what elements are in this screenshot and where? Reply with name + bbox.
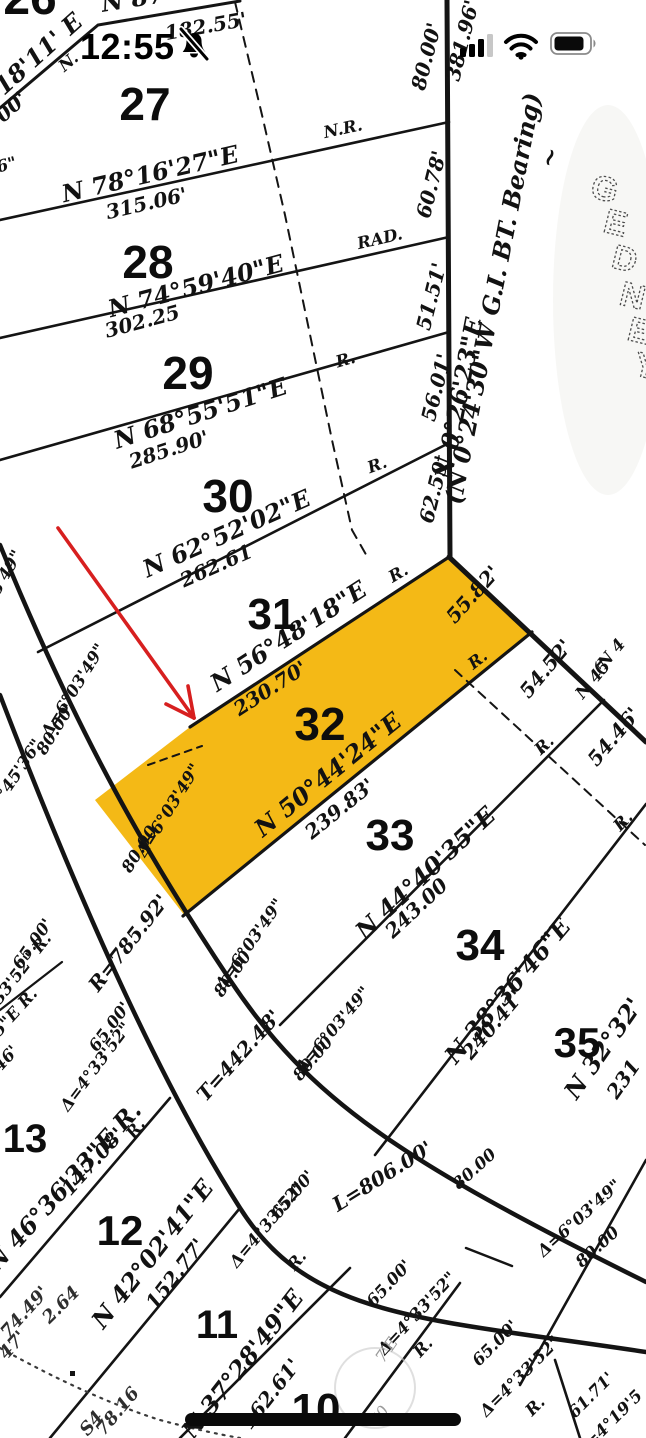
map-label: 65.00' [363,1256,416,1310]
map-label: R. [333,348,358,372]
map-label: 46' [0,1042,22,1076]
lot-number-32: 32 [294,698,345,750]
map-label: N 87° [98,0,178,18]
map-label: R=785.92' [83,890,174,997]
map-label: 60.78' [411,148,451,221]
map-label: 51.51' [411,260,451,333]
map-label: R. [283,1247,311,1275]
lot-number-12: 12 [97,1207,144,1254]
map-label: 80.00 [448,1144,500,1194]
phone-screen: N 87°182.55'18'11' E00'N.6"N 78°16'27"E3… [0,0,646,1438]
map-label: (N 0°24'30"W G.I. BT. Bearing) [439,90,547,506]
lot-number-11: 11 [196,1303,238,1347]
plat-map: N 87°182.55'18'11' E00'N.6"N 78°16'27"E3… [0,0,646,1438]
lot-number-10: 10 [292,1385,341,1434]
home-indicator[interactable] [185,1413,461,1426]
map-label: 65.00' [468,1316,522,1370]
lot-number-34: 34 [456,921,505,970]
map-label: N.R. [321,115,364,142]
lot-number-13: 13 [3,1117,48,1161]
map-label: R. [409,1334,437,1362]
lot-number-29: 29 [162,347,213,399]
map-label: ~ [532,143,566,172]
lot-number-30: 30 [202,470,253,522]
lot-number-28: 28 [122,236,173,288]
survey-point [70,1371,75,1376]
lot-number-27: 27 [119,78,170,130]
road-centerline-dash [466,1248,512,1266]
lot-number-33: 33 [366,811,415,860]
map-label: 80.00' [406,20,446,93]
map-label: R. [609,808,637,836]
lot-number-35: 35 [554,1019,601,1066]
map-label: R. [521,1393,549,1421]
map-label: 6" [0,153,19,177]
map-label: R. [364,453,390,478]
lot-number-26: 26 [3,0,56,25]
lot-number-31: 31 [248,590,297,639]
map-label: T=442.48' [192,1005,286,1106]
map-label: R. [530,731,558,759]
